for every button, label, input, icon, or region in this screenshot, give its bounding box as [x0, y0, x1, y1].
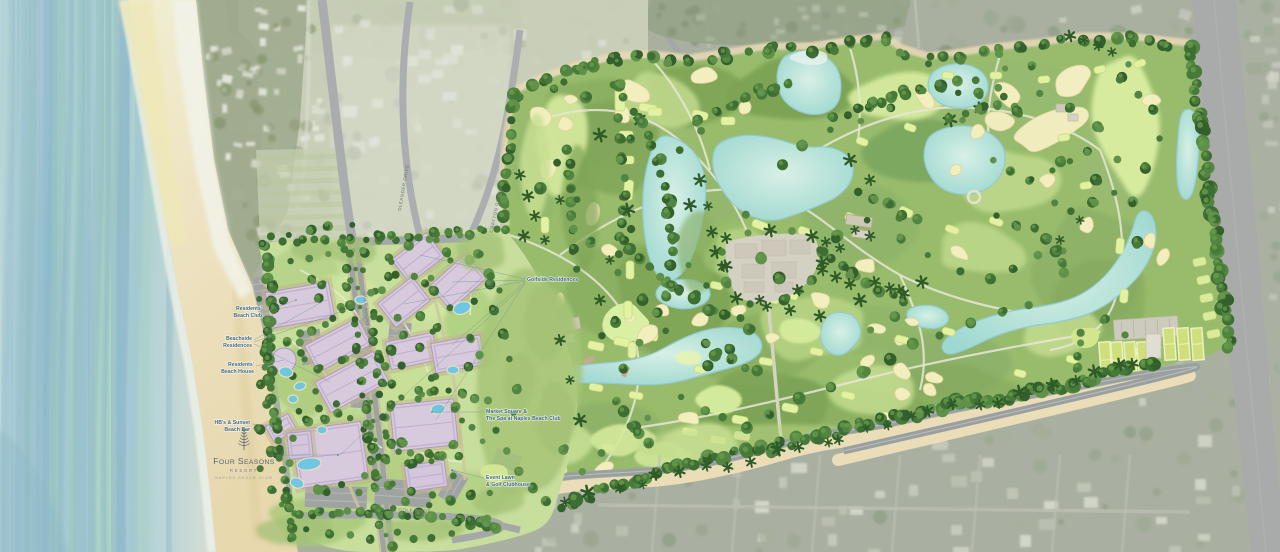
- svg-text:Residents'Beach Club: Residents'Beach Club: [233, 306, 262, 319]
- svg-text:Golfside Residences: Golfside Residences: [527, 277, 578, 283]
- svg-text:BeachsideResidences: BeachsideResidences: [223, 336, 252, 349]
- svg-text:NAPLES BEACH CLUB: NAPLES BEACH CLUB: [215, 476, 273, 480]
- svg-text:RESORT: RESORT: [230, 468, 258, 473]
